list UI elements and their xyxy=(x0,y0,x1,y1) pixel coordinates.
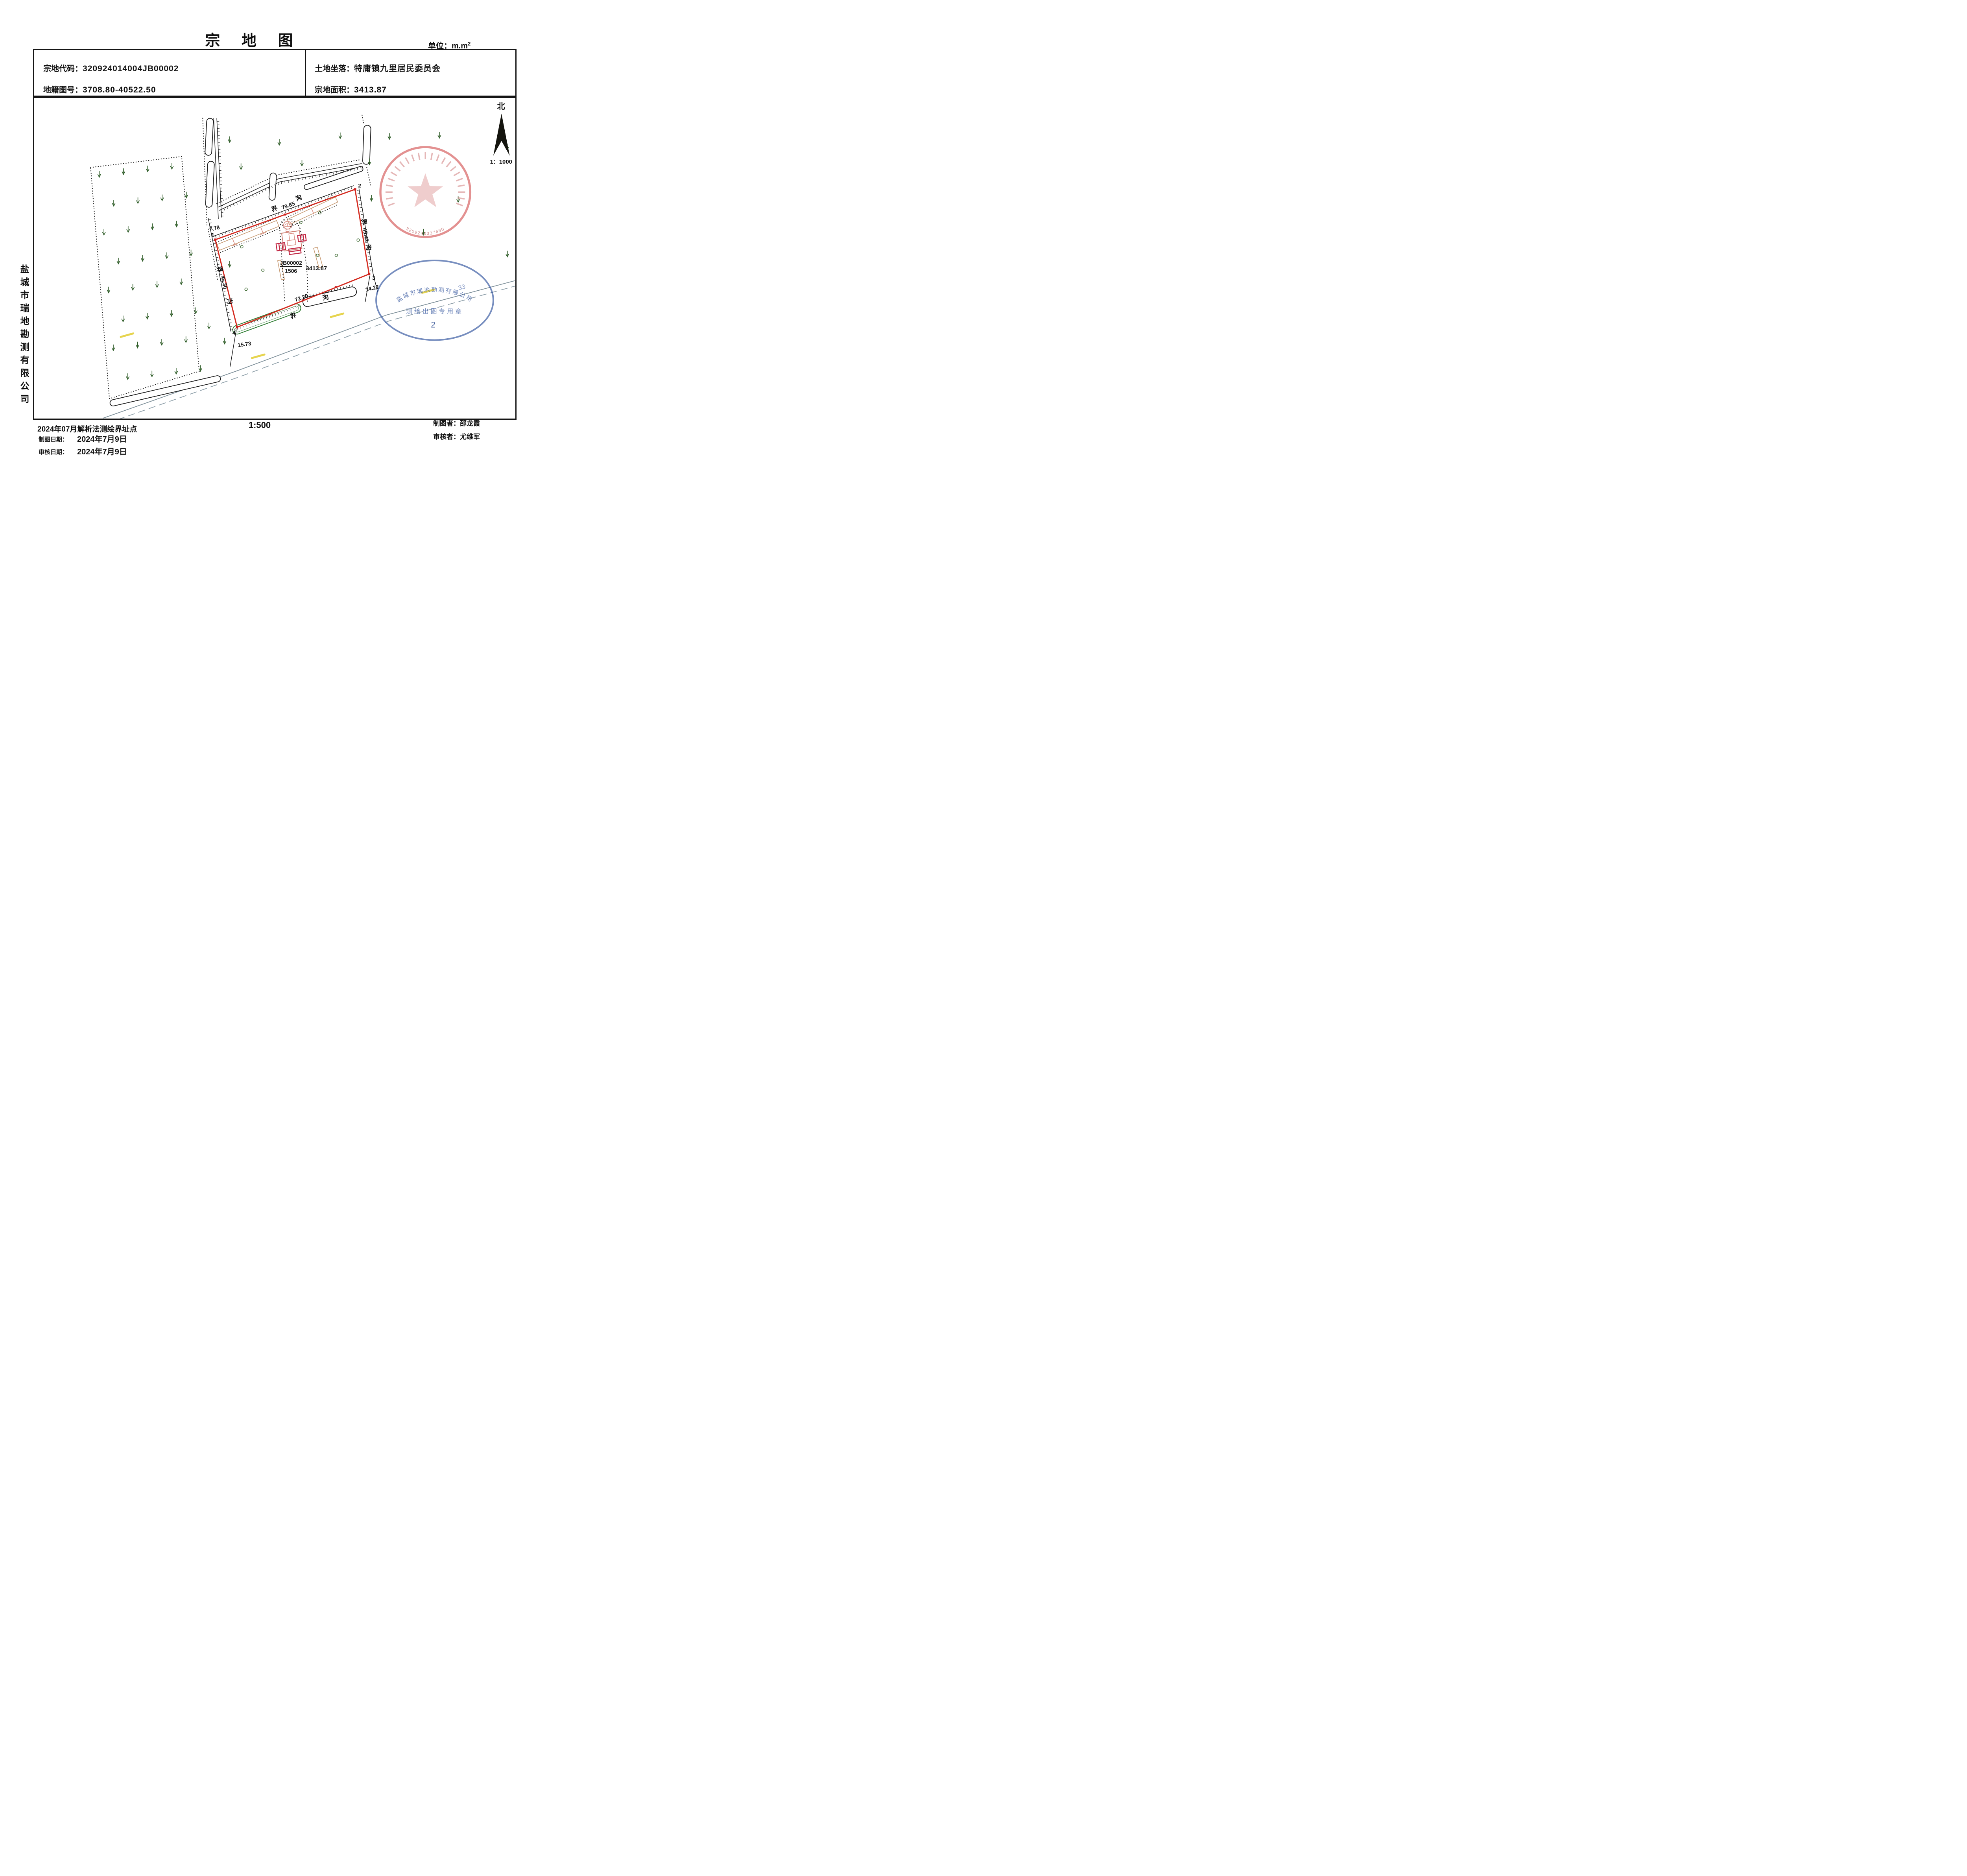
checker-name: 尤维军 xyxy=(460,433,480,441)
draw-date-label: 制图日期： xyxy=(39,435,68,443)
parcel-number-label: 1506 xyxy=(285,268,297,274)
cadastral-sheet-line: 地籍图号：3708.80-40522.50 xyxy=(43,83,156,95)
north-arrow-group: 北 1：1000 xyxy=(490,102,512,165)
land-location-line: 土地坐落：特庸镇九里居民委员会 xyxy=(315,62,441,74)
offset-v4-label: 15.73 xyxy=(237,340,252,349)
parcel-code-map-label: JB00002 xyxy=(280,260,303,266)
ditch-lines xyxy=(208,186,378,367)
map-frame: 界 79.85 沟 界 45.43 沟 界 45.30 沟 72.20 界 沟 … xyxy=(33,97,517,420)
cadastral-sheet-label: 地籍图号： xyxy=(43,86,83,94)
blue-stamp-number: 2 xyxy=(431,321,435,330)
tree-symbols xyxy=(240,211,360,290)
gou-strip xyxy=(302,286,358,307)
page-title: 宗 地 图 xyxy=(194,28,312,50)
parcel-area-map-label: 3413.87 xyxy=(306,266,327,272)
parcel-code-line: 宗地代码：320924014004JB00002 xyxy=(43,62,179,74)
canal-strips xyxy=(109,118,371,406)
drafter-name: 邵龙霞 xyxy=(460,420,480,427)
parcel-area-label: 宗地面积： xyxy=(315,86,354,94)
well-structure xyxy=(284,221,292,232)
check-date-label: 审核日期： xyxy=(39,448,68,456)
ditch-tick-marks xyxy=(209,121,373,330)
north-arrow-icon xyxy=(493,114,510,156)
survey-method-note: 2024年07月解析法测绘界址点 xyxy=(37,423,137,434)
parcel-code-label: 宗地代码： xyxy=(43,65,83,73)
jie-left-label: 界 xyxy=(215,265,223,273)
vertex-4-label: 4 xyxy=(232,330,236,336)
drafter-line: 制图者：邵龙霞 xyxy=(433,418,480,428)
building-complex xyxy=(276,221,306,255)
north-scale-label: 1：1000 xyxy=(490,159,512,165)
unit-superscript: 2 xyxy=(468,41,471,46)
info-box-divider xyxy=(305,49,306,97)
vertex-1-label: 1 xyxy=(211,232,214,238)
field-dotted-boundary xyxy=(90,157,199,398)
map-scale-label: 1:500 xyxy=(236,420,283,430)
parcel-code-value: 320924014004JB00002 xyxy=(83,64,179,73)
checker-line: 审核者：尤维军 xyxy=(433,431,480,441)
blue-stamp-purpose-line: 测绘出图专用章 xyxy=(406,308,463,315)
gou-top-label: 沟 xyxy=(294,194,303,203)
cadastral-sheet-value: 3708.80-40522.50 xyxy=(83,85,156,94)
grass-arrow-symbols xyxy=(98,132,509,379)
blue-stamp-fragment: 33 xyxy=(458,283,466,291)
dotted-paths xyxy=(90,115,371,399)
cadastral-map: 界 79.85 沟 界 45.43 沟 界 45.30 沟 72.20 界 沟 … xyxy=(34,98,515,419)
check-date-value: 2024年7月9日 xyxy=(77,445,127,457)
corridor-road xyxy=(214,118,221,219)
offset-v1-label: 7.78 xyxy=(209,224,220,232)
gou-right-label: 沟 xyxy=(364,244,373,251)
land-location-value: 特庸镇九里居民委员会 xyxy=(354,64,441,73)
parcel-area-line: 宗地面积：3413.87 xyxy=(315,83,387,95)
vertex-3-label: 3 xyxy=(372,275,375,281)
gou-left-label: 沟 xyxy=(225,297,234,305)
red-stamp: 3209240337690 xyxy=(380,147,470,237)
parcel-area-value: 3413.87 xyxy=(354,85,387,94)
jie-right-label: 界 xyxy=(360,218,367,226)
drafter-label: 制图者： xyxy=(433,420,460,427)
blue-stamp: 盐城市瑞地勘测有限公司 33 测绘出图专用章 2 xyxy=(376,260,493,340)
vertex-2-label: 2 xyxy=(358,182,361,188)
red-stamp-star-icon xyxy=(408,173,443,207)
survey-company-name: 盐城市瑞地勘测有限公司 xyxy=(17,264,31,414)
land-location-label: 土地坐落： xyxy=(315,65,354,73)
jie-top-label: 界 xyxy=(270,205,279,213)
checker-label: 审核者： xyxy=(433,433,460,441)
north-label: 北 xyxy=(497,102,505,111)
draw-date-value: 2024年7月9日 xyxy=(77,433,127,444)
